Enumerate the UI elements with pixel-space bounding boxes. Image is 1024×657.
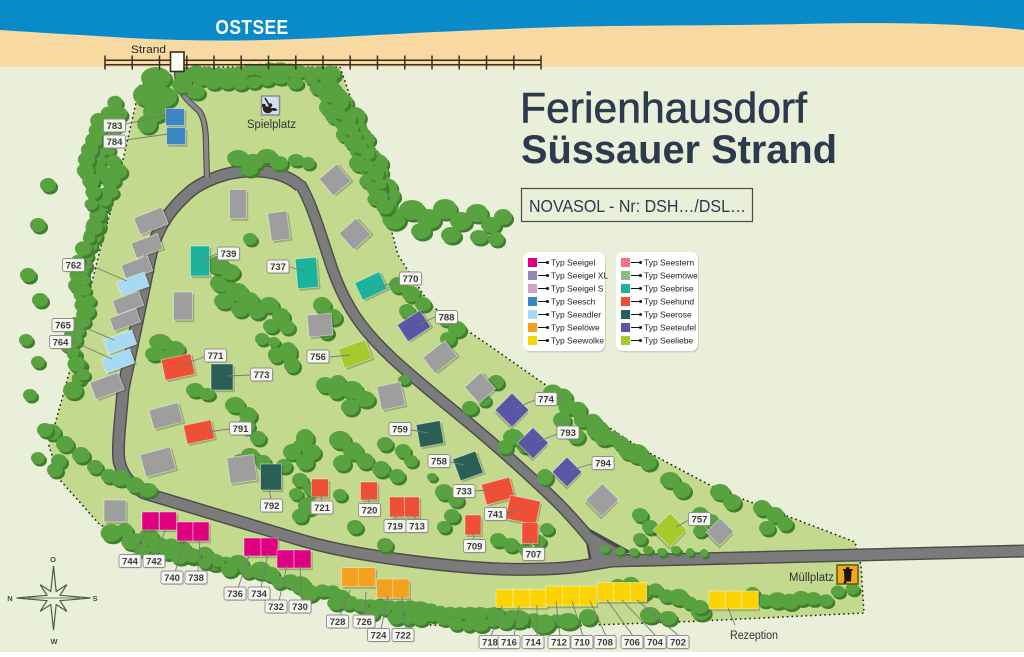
svg-text:724: 724 bbox=[371, 630, 388, 641]
svg-text:Typ Seeadler: Typ Seeadler bbox=[551, 310, 601, 320]
svg-text:714: 714 bbox=[525, 637, 542, 648]
svg-text:S: S bbox=[92, 594, 97, 603]
svg-text:744: 744 bbox=[122, 556, 139, 567]
svg-text:716: 716 bbox=[501, 637, 517, 648]
svg-text:Typ Seelöwe: Typ Seelöwe bbox=[551, 323, 600, 333]
svg-text:765: 765 bbox=[55, 320, 72, 331]
svg-text:791: 791 bbox=[233, 424, 250, 435]
svg-text:740: 740 bbox=[164, 573, 180, 584]
svg-text:708: 708 bbox=[597, 637, 613, 648]
svg-text:Typ Seebrise: Typ Seebrise bbox=[644, 284, 694, 294]
svg-text:762: 762 bbox=[66, 260, 82, 271]
svg-text:733: 733 bbox=[456, 486, 472, 497]
svg-text:774: 774 bbox=[538, 394, 555, 405]
svg-text:Typ Seehund: Typ Seehund bbox=[644, 297, 694, 307]
svg-text:720: 720 bbox=[362, 505, 378, 516]
svg-text:Typ Seeigel: Typ Seeigel bbox=[551, 258, 596, 268]
svg-text:738: 738 bbox=[188, 573, 204, 584]
svg-text:728: 728 bbox=[330, 617, 346, 628]
svg-text:NOVASOL - Nr: DSH…/DSL…: NOVASOL - Nr: DSH…/DSL… bbox=[529, 196, 746, 216]
svg-text:707: 707 bbox=[526, 549, 542, 560]
svg-text:721: 721 bbox=[314, 503, 331, 514]
svg-text:770: 770 bbox=[403, 274, 419, 285]
svg-text:709: 709 bbox=[467, 541, 483, 552]
svg-text:718: 718 bbox=[482, 637, 498, 648]
svg-text:732: 732 bbox=[268, 602, 284, 613]
svg-text:710: 710 bbox=[574, 637, 590, 648]
svg-text:734: 734 bbox=[251, 589, 268, 600]
svg-text:Typ Seerose: Typ Seerose bbox=[644, 310, 692, 320]
svg-text:794: 794 bbox=[595, 458, 612, 469]
svg-text:Typ Seewolke: Typ Seewolke bbox=[551, 336, 604, 346]
svg-text:Typ Seestern: Typ Seestern bbox=[644, 258, 694, 268]
svg-text:726: 726 bbox=[356, 617, 372, 628]
svg-text:757: 757 bbox=[692, 514, 708, 525]
svg-text:Typ Seemöwe: Typ Seemöwe bbox=[644, 271, 698, 281]
svg-text:788: 788 bbox=[439, 312, 455, 323]
svg-text:Ferienhausdorf: Ferienhausdorf bbox=[520, 86, 807, 133]
svg-text:741: 741 bbox=[488, 509, 505, 520]
svg-text:W: W bbox=[50, 637, 58, 646]
svg-text:712: 712 bbox=[551, 637, 567, 648]
svg-text:758: 758 bbox=[431, 456, 447, 467]
svg-text:730: 730 bbox=[292, 602, 308, 613]
svg-text:Süssauer Strand: Süssauer Strand bbox=[521, 128, 837, 172]
svg-text:Typ Seeigel S: Typ Seeigel S bbox=[551, 284, 604, 294]
svg-text:737: 737 bbox=[270, 262, 286, 273]
svg-text:704: 704 bbox=[647, 637, 664, 648]
svg-text:771: 771 bbox=[208, 351, 225, 362]
svg-text:736: 736 bbox=[227, 589, 243, 600]
svg-text:722: 722 bbox=[395, 630, 411, 641]
svg-text:N: N bbox=[7, 594, 12, 603]
svg-text:Rezeption: Rezeption bbox=[730, 630, 778, 642]
svg-text:Typ Seeigel XL: Typ Seeigel XL bbox=[551, 271, 608, 281]
svg-text:Typ Seesch: Typ Seesch bbox=[551, 297, 596, 307]
svg-text:702: 702 bbox=[670, 637, 686, 648]
svg-text:Müllplatz: Müllplatz bbox=[789, 572, 834, 584]
svg-text:739: 739 bbox=[221, 249, 237, 260]
svg-text:Typ Seeteufel: Typ Seeteufel bbox=[644, 323, 696, 333]
svg-text:713: 713 bbox=[409, 521, 425, 532]
svg-text:OSTSEE: OSTSEE bbox=[215, 17, 288, 40]
svg-text:773: 773 bbox=[254, 370, 270, 381]
svg-text:742: 742 bbox=[146, 556, 162, 567]
svg-text:Typ Seeliebe: Typ Seeliebe bbox=[644, 336, 693, 346]
svg-text:Spielplatz: Spielplatz bbox=[247, 119, 296, 131]
svg-text:783: 783 bbox=[107, 121, 123, 132]
svg-text:793: 793 bbox=[560, 428, 576, 439]
svg-text:O: O bbox=[50, 555, 56, 564]
svg-text:719: 719 bbox=[387, 521, 403, 532]
svg-text:792: 792 bbox=[264, 501, 280, 512]
svg-text:706: 706 bbox=[624, 637, 640, 648]
svg-text:784: 784 bbox=[107, 137, 124, 148]
svg-text:764: 764 bbox=[53, 337, 70, 348]
svg-text:Strand: Strand bbox=[131, 44, 166, 56]
svg-text:759: 759 bbox=[392, 424, 408, 435]
svg-text:756: 756 bbox=[310, 352, 326, 363]
